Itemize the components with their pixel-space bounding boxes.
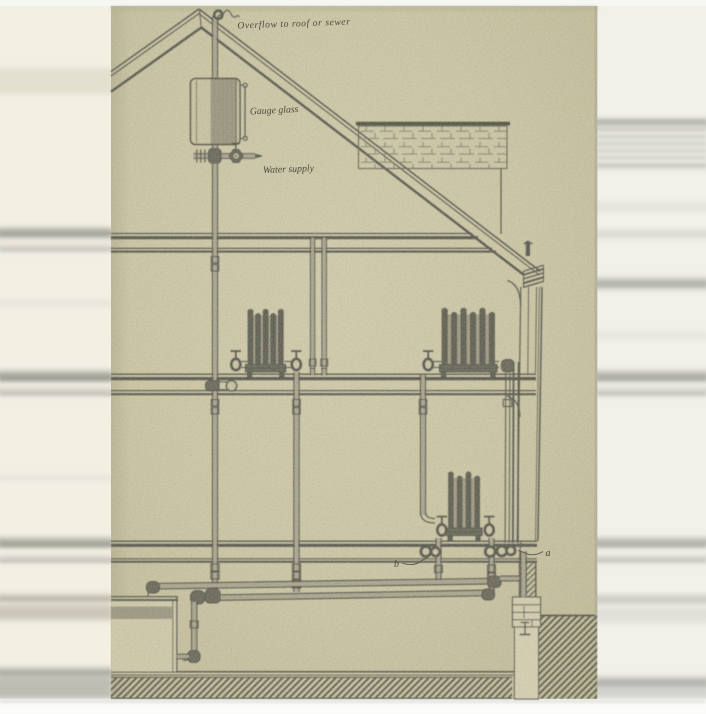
svg-text:Water supply: Water supply <box>263 163 315 176</box>
svg-text:a: a <box>546 548 551 559</box>
svg-text:b: b <box>394 559 399 570</box>
